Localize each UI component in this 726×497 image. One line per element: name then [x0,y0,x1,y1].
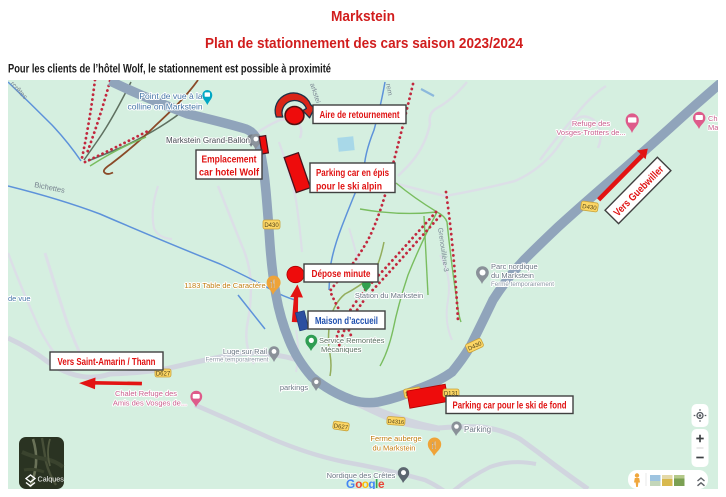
svg-text:de vue: de vue [8,294,31,303]
svg-text:Emplacement: Emplacement [202,154,257,166]
svg-text:Refuge des: Refuge des [572,119,611,128]
svg-text:Markstein Grand-Ballon: Markstein Grand-Ballon [166,136,250,145]
svg-text:Amis des Vosges de...: Amis des Vosges de... [113,399,187,408]
svg-text:Parking: Parking [464,425,491,434]
svg-text:Ma: Ma [708,123,719,132]
svg-text:e: e [378,477,385,491]
svg-text:Mécaniques: Mécaniques [321,345,362,354]
svg-text:Fermé temporairement: Fermé temporairement [206,357,269,364]
svg-text:Station du Markstein: Station du Markstein [355,291,423,300]
svg-text:Parc nordique: Parc nordique [491,262,538,271]
svg-text:Parking car en épis: Parking car en épis [316,167,389,179]
svg-text:G: G [346,477,355,491]
svg-text:pour le ski alpin: pour le ski alpin [316,181,382,193]
svg-text:Parking car pour le ski de fon: Parking car pour le ski de fond [453,401,567,412]
svg-text:Maison d’accueil: Maison d’accueil [315,315,378,327]
svg-text:Dépose minute: Dépose minute [312,268,371,280]
svg-text:Pour les clients de l’hôtel Wo: Pour les clients de l’hôtel Wolf, le sta… [8,64,331,76]
svg-text:Point de vue à la: Point de vue à la [139,91,203,101]
svg-text:Aire de retournement: Aire de retournement [320,109,400,121]
svg-text:🍴: 🍴 [430,441,439,450]
svg-text:Markstein: Markstein [331,9,395,25]
svg-text:Fermé temporairement: Fermé temporairement [491,281,554,288]
svg-text:du Markstein: du Markstein [491,271,534,280]
svg-text:D430: D430 [264,223,279,229]
svg-text:1183 Table de Caractère: 1183 Table de Caractère [184,281,265,290]
svg-text:du Markstein: du Markstein [373,444,416,453]
svg-text:D4316: D4316 [387,419,404,426]
svg-text:car hotel Wolf: car hotel Wolf [199,167,259,179]
svg-text:Ferme auberge: Ferme auberge [370,434,421,443]
svg-text:Vers Saint-Amarin / Thann: Vers Saint-Amarin / Thann [58,356,156,368]
svg-text:D627: D627 [156,372,171,378]
svg-text:Service Remontées: Service Remontées [319,336,385,345]
svg-text:Chalet Refuge des: Chalet Refuge des [115,389,177,398]
svg-text:Vosges-Trotters de...: Vosges-Trotters de... [556,128,625,137]
svg-text:parkings: parkings [280,383,309,392]
svg-text:🍴: 🍴 [268,279,277,288]
svg-text:Plan de stationnement des cars: Plan de stationnement des cars saison 20… [205,36,523,52]
svg-text:Luge sur Rail: Luge sur Rail [223,347,268,356]
svg-text:Calques: Calques [38,475,65,484]
svg-text:colline on Markstein: colline on Markstein [127,102,202,112]
